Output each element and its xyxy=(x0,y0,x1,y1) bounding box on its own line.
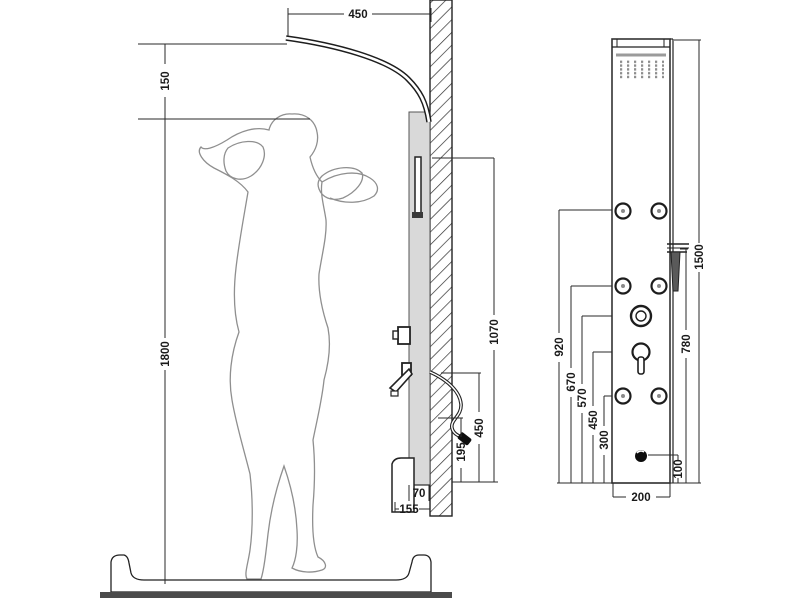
dim-label-150: 150 xyxy=(160,71,172,90)
dim-jets-bottom: 300 xyxy=(599,396,612,483)
dim-label-300: 300 xyxy=(599,430,611,449)
side-view: 450 150 1800 1070 450 xyxy=(100,0,501,598)
dim-label-450-low: 450 xyxy=(474,418,486,437)
dim-label-570: 570 xyxy=(577,388,589,407)
diverter-knob-side xyxy=(393,327,410,344)
dim-label-1500: 1500 xyxy=(694,244,706,270)
dim-label-1800: 1800 xyxy=(160,341,172,367)
dim-person-height: 1800 xyxy=(160,119,172,584)
dim-hand-shower-height: 780 xyxy=(680,249,693,483)
shower-panel-drawing: 450 150 1800 1070 450 xyxy=(0,0,788,600)
dim-label-450-front: 450 xyxy=(588,410,600,429)
dim-panel-depth: 70 xyxy=(409,485,429,501)
dim-label-100: 100 xyxy=(673,459,685,478)
person-silhouette xyxy=(199,114,377,579)
dim-label-780: 780 xyxy=(681,334,693,353)
dim-label-450-top: 450 xyxy=(348,9,367,21)
dim-label-70: 70 xyxy=(413,488,426,500)
dim-label-195: 195 xyxy=(456,442,468,462)
front-view: 1500 780 920 670 570 xyxy=(554,39,706,504)
technical-drawing-canvas: 450 150 1800 1070 450 xyxy=(0,0,788,600)
dim-diverter-height: 570 xyxy=(577,316,612,483)
water-spout xyxy=(635,450,647,462)
dim-mixer-height: 450 xyxy=(588,352,612,483)
overhead-shower-nozzles xyxy=(618,60,664,79)
dim-label-1070: 1070 xyxy=(489,319,501,345)
shower-tray xyxy=(111,555,431,592)
shower-arm xyxy=(286,38,429,122)
dim-top-offset: 450 xyxy=(288,8,431,36)
diverter-knob xyxy=(631,306,651,326)
dim-base-depth: 155 xyxy=(395,502,430,516)
dim-panel-width: 200 xyxy=(613,483,670,504)
wall-section xyxy=(430,0,452,516)
floor-line xyxy=(100,592,452,598)
shower-panel-front xyxy=(612,39,670,483)
dim-label-200: 200 xyxy=(631,492,650,504)
dim-label-920: 920 xyxy=(554,337,566,356)
dim-head-clearance: 150 xyxy=(138,44,310,119)
dim-label-155: 155 xyxy=(399,504,419,516)
